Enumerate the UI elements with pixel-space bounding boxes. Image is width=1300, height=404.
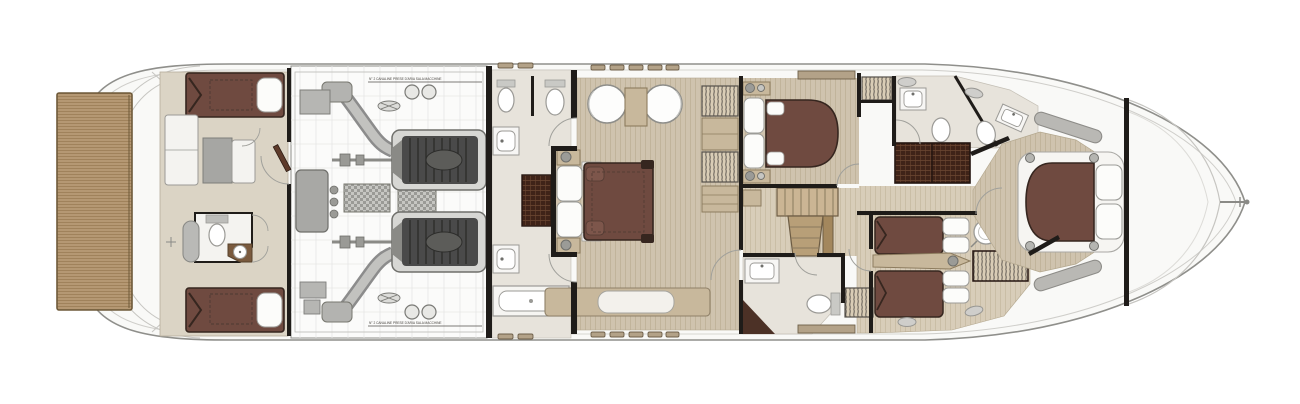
- vip-vanity: [900, 88, 926, 110]
- bidet: [498, 88, 514, 112]
- pump-valves: [330, 186, 338, 218]
- bathroom-wardrobe: [522, 175, 551, 226]
- vip-pillow-1: [767, 102, 784, 115]
- engine-annotation-top-text: N° 2 CANALINE PRESE D'ARIA SALA MACCHINE: [369, 77, 442, 81]
- crew-table: [203, 138, 232, 183]
- master-bed-pillow-2: [586, 221, 604, 235]
- crew-bed-bottom-pillow: [257, 293, 282, 327]
- bow-mattress: [1026, 163, 1094, 241]
- twin-bed-top: [875, 217, 969, 254]
- aux-box-1: [300, 282, 326, 298]
- swivel-chair-right: [644, 85, 682, 123]
- closet-hanging-2: [702, 152, 738, 182]
- master-vanity-bottom: [493, 245, 519, 273]
- yacht-lower-deck-plan: N° 2 CANALINE PRESE D'ARIA SALA MACCHINE…: [0, 0, 1300, 404]
- master-headboard-cushion-1: [557, 166, 582, 201]
- vip-toilet: [932, 118, 950, 142]
- floor-grating-1: [344, 184, 390, 212]
- vip-pillow-2: [767, 152, 784, 165]
- engine-annotation-bottom-text: N° 2 CANALINE PRESE D'ARIA SALA MACCHINE: [369, 321, 442, 325]
- crew-cabin: [160, 72, 288, 336]
- swivel-chair-left: [588, 85, 626, 123]
- master-bed: [557, 150, 654, 253]
- master-headboard-cushion-2: [557, 202, 582, 237]
- crew-toilet-tank: [206, 215, 228, 223]
- fuel-tank: [296, 170, 328, 232]
- crew-toilet: [209, 224, 225, 246]
- twin-bed-bottom-pillows: [943, 271, 969, 286]
- toilet-tank: [545, 80, 565, 87]
- aux-box-2: [304, 300, 320, 314]
- vip-bed: [744, 98, 838, 168]
- muffler-bottom: [322, 302, 352, 322]
- crew-shower-tub: [183, 221, 199, 262]
- master-bench: [545, 288, 710, 316]
- guest-toilet: [807, 293, 840, 315]
- closet-hanging-1: [702, 86, 738, 116]
- cocktail-table: [625, 88, 647, 126]
- crew-bed-top: [186, 73, 284, 117]
- bow-pillow-1: [1096, 165, 1122, 200]
- master-toilet: [546, 89, 564, 115]
- master-vanity-top: [493, 127, 519, 155]
- head-partition: [531, 76, 534, 116]
- bow-pillow-2: [1096, 204, 1122, 239]
- crew-bed-bottom: [186, 288, 284, 332]
- floor-plan-canvas: N° 2 CANALINE PRESE D'ARIA SALA MACCHINE…: [0, 0, 1300, 404]
- guest-luggage-rack: [845, 288, 873, 317]
- lobby-cabinet: [743, 190, 761, 206]
- engine-room: N° 2 CANALINE PRESE D'ARIA SALA MACCHINE…: [291, 66, 487, 338]
- bidet-tank: [497, 80, 515, 87]
- master-bed-pillow-1: [586, 167, 604, 181]
- swim-platform: [57, 93, 132, 310]
- vip-headboard-cushion-2: [744, 134, 764, 168]
- vip-closet: [862, 77, 892, 100]
- twin-console-lamp: [948, 256, 958, 266]
- generator-box: [300, 90, 330, 114]
- master-closets: [702, 86, 738, 212]
- vip-headboard-cushion-1: [744, 98, 764, 133]
- seacock-top: [378, 101, 400, 111]
- seacock-bottom: [378, 293, 400, 303]
- forward-corridor-floor: [859, 186, 977, 214]
- twin-bed-top-pillows: [943, 218, 969, 235]
- dresser: [702, 186, 738, 212]
- guest-vanity: [745, 259, 779, 283]
- lobby-stairs: [743, 188, 859, 256]
- crew-bed-top-pillow: [257, 78, 282, 112]
